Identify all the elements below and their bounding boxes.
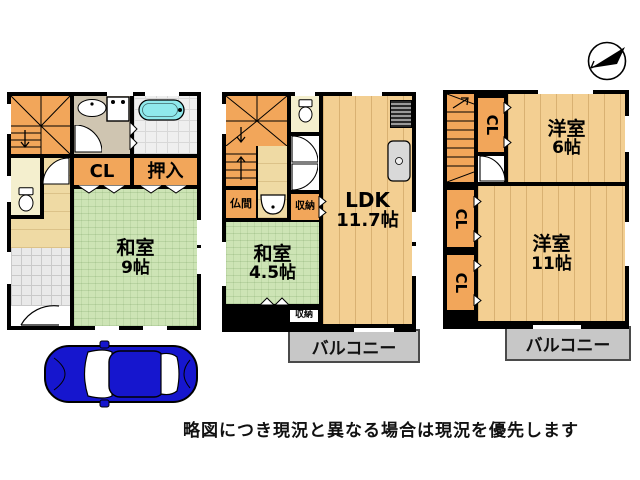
bathtub-icon [138, 99, 186, 122]
washitsu-9-room: 和室 9帖 [74, 189, 197, 326]
storage-label: 収納 [295, 202, 315, 213]
room-size: 9帖 [121, 259, 150, 277]
window [222, 242, 226, 286]
ldk-room: LDK 11.7帖 [323, 96, 412, 324]
toilet-icon [297, 99, 314, 123]
storage-label: 収納 [295, 311, 313, 321]
room-label: 和室 [253, 244, 291, 264]
room-size: 6帖 [552, 139, 581, 157]
kitchen-sink-icon [387, 140, 411, 182]
window [222, 104, 226, 134]
closet-label: CL [453, 208, 469, 229]
window [352, 92, 382, 96]
closet-cl-3f-bottom: CL [447, 255, 474, 310]
window [538, 90, 593, 94]
washing-machine-icon [106, 96, 130, 122]
window [143, 326, 167, 330]
storage-2f-lower: 収納 [288, 308, 320, 324]
butsuma-label: 仏間 [230, 198, 252, 210]
toilet-icon [17, 187, 35, 212]
room-size: 11帖 [531, 255, 572, 273]
floorplan-canvas: CL 押入 和室 9帖 [0, 0, 640, 480]
window [625, 116, 629, 152]
balcony-2f: バルコニー [288, 329, 420, 363]
window [197, 220, 201, 245]
stairs-icon [11, 96, 70, 154]
window [7, 252, 11, 284]
storage-2f: 収納 [291, 194, 319, 220]
door-arc-icon [479, 156, 505, 182]
bifold-door-icon [260, 297, 290, 306]
door-arc-icon [43, 158, 70, 185]
door-arc-icon [74, 125, 102, 153]
closet-door-icon [473, 260, 482, 306]
balcony-door [533, 325, 581, 329]
bifold-door-icon [77, 185, 127, 194]
entrance-genkan [11, 248, 70, 306]
yoshitsu-11-room: 洋室 11帖 [478, 186, 625, 321]
closet-door-icon [503, 102, 512, 148]
window [295, 92, 315, 96]
window [7, 104, 11, 134]
stairs-icon [226, 146, 256, 186]
stairs-icon [447, 94, 474, 182]
disclaimer-text: 略図につき現況と異なる場合は現況を優先します [183, 416, 579, 441]
compass-icon [586, 41, 628, 81]
room-label: 洋室 [532, 234, 570, 254]
window [7, 176, 11, 202]
butsuma-room: 仏間 [226, 190, 256, 218]
staircase-2f-upper [226, 96, 287, 146]
window [625, 222, 629, 266]
room-label: LDK [345, 190, 390, 211]
car-icon [42, 338, 200, 410]
staircase-2f-lower [226, 146, 256, 186]
floor2-plan: 仏間 収納 LDK 11.7帖 和室 4.5帖 収納 [222, 92, 416, 332]
room-label: 和室 [116, 238, 154, 258]
door-arc-icon [291, 163, 318, 190]
hallway-1f-lower [11, 219, 44, 248]
window [412, 212, 416, 242]
balcony-label: バルコニー [312, 334, 397, 359]
closet-cl-1f: CL [74, 158, 130, 185]
room-size: 11.7帖 [336, 211, 398, 230]
washbasin-icon [260, 194, 286, 216]
closet-door-icon [473, 196, 482, 242]
window [412, 246, 416, 276]
oshiire-1f: 押入 [134, 158, 197, 185]
stove-icon [390, 100, 412, 128]
yoshitsu-6-room: 洋室 6帖 [508, 94, 625, 182]
staircase-3f [447, 94, 474, 182]
closet-cl-3f-mid: CL [447, 190, 474, 247]
window [145, 92, 179, 96]
room-label: 洋室 [547, 119, 585, 139]
washitsu-45-room: 和室 4.5帖 [226, 222, 319, 304]
storage-door-icon [318, 196, 327, 218]
entrance-door-arc-icon [19, 304, 61, 326]
window [95, 326, 119, 330]
balcony-3f: バルコニー [505, 326, 631, 361]
floor3-plan: CL 洋室 6帖 CL CL 洋室 11帖 [443, 90, 629, 329]
stairs-icon [226, 96, 287, 146]
window [197, 248, 201, 274]
oshiire-label: 押入 [148, 162, 184, 181]
closet-label: CL [90, 162, 115, 181]
bath-door-icon [129, 122, 138, 150]
window [107, 92, 133, 96]
closet-cl-3f-top: CL [478, 98, 504, 152]
floor1-plan: CL 押入 和室 9帖 [7, 92, 201, 330]
closet-label: CL [483, 115, 499, 136]
balcony-door [354, 328, 394, 332]
door-arc-icon [291, 136, 318, 163]
balcony-label: バルコニー [526, 331, 611, 356]
room-size: 4.5帖 [249, 264, 296, 282]
staircase-1f [11, 96, 70, 154]
sink-icon [76, 98, 108, 118]
bifold-door-icon [139, 185, 189, 194]
closet-label: CL [453, 272, 469, 293]
